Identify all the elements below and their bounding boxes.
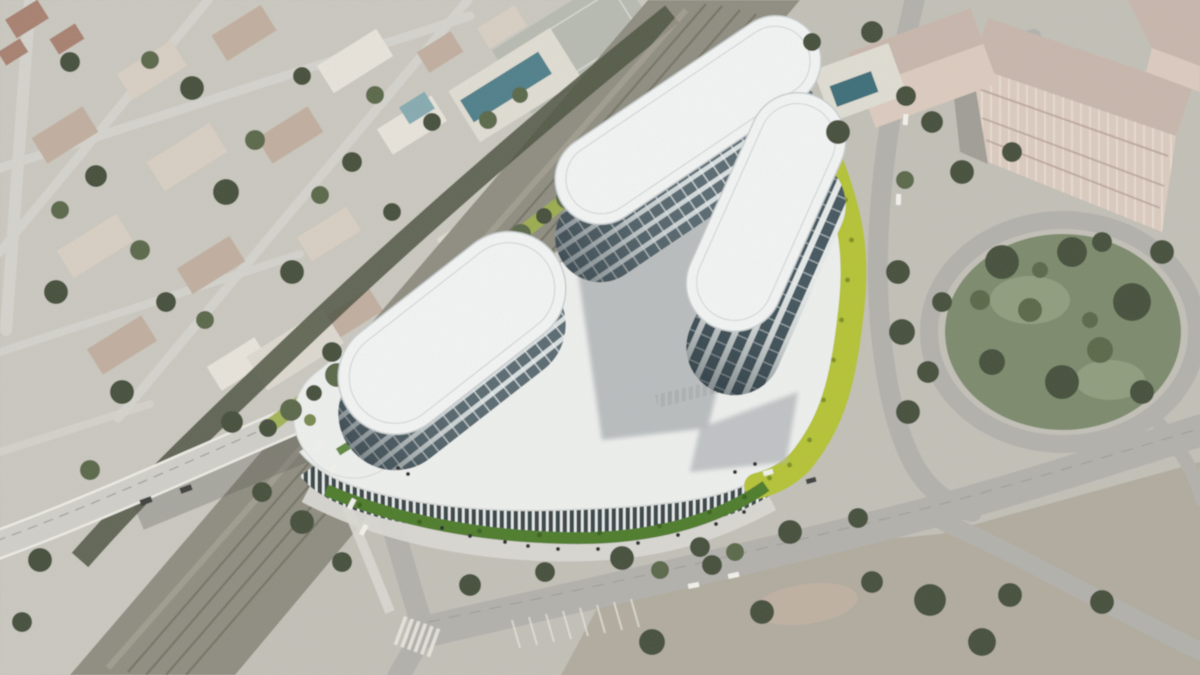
photo-grain-overlay — [0, 0, 1200, 675]
screenshot-root: Aerial photograph with architectural ren… — [0, 0, 1200, 675]
aerial-rendering-image: Aerial photograph with architectural ren… — [0, 0, 1200, 675]
